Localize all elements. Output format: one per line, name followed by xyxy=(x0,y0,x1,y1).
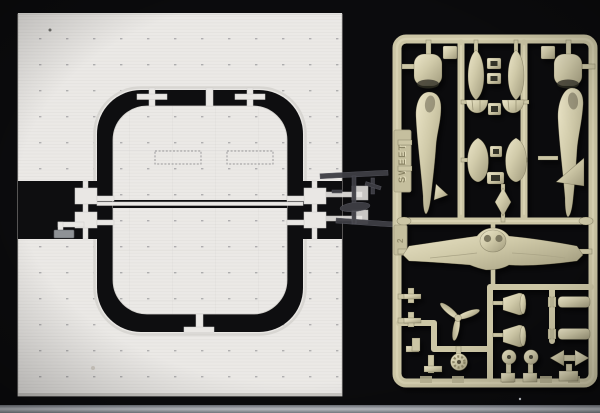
elevator-plate xyxy=(113,106,287,314)
table-edge xyxy=(0,405,600,413)
dust-speck xyxy=(91,366,95,370)
cowl-plate-right xyxy=(541,46,555,59)
photo-canvas: SWEET SWEET 2 xyxy=(0,0,600,413)
deck-bottom-shade xyxy=(18,393,342,396)
cowl-plate-left xyxy=(443,46,457,59)
brand-embossing: SWEET xyxy=(397,143,407,183)
deck-plates-group xyxy=(18,13,368,396)
metal-clip xyxy=(54,230,74,238)
nacelle-opening xyxy=(484,235,491,242)
dust-speck xyxy=(519,398,521,400)
gate-blob xyxy=(579,217,593,225)
dark-runner-bar xyxy=(352,176,356,224)
wing-nacelle xyxy=(480,230,506,252)
brand-tab: SWEET SWEET xyxy=(394,130,411,192)
dust-speck xyxy=(49,29,52,32)
elevator-split-runner xyxy=(97,202,303,206)
nacelle-opening xyxy=(495,235,502,242)
gate-blob xyxy=(397,217,411,225)
antenna-part xyxy=(538,156,558,160)
number-embossing: 2 xyxy=(396,237,405,243)
kit-photo: SWEET SWEET 2 xyxy=(0,0,600,413)
dark-runner-bit xyxy=(332,190,342,193)
